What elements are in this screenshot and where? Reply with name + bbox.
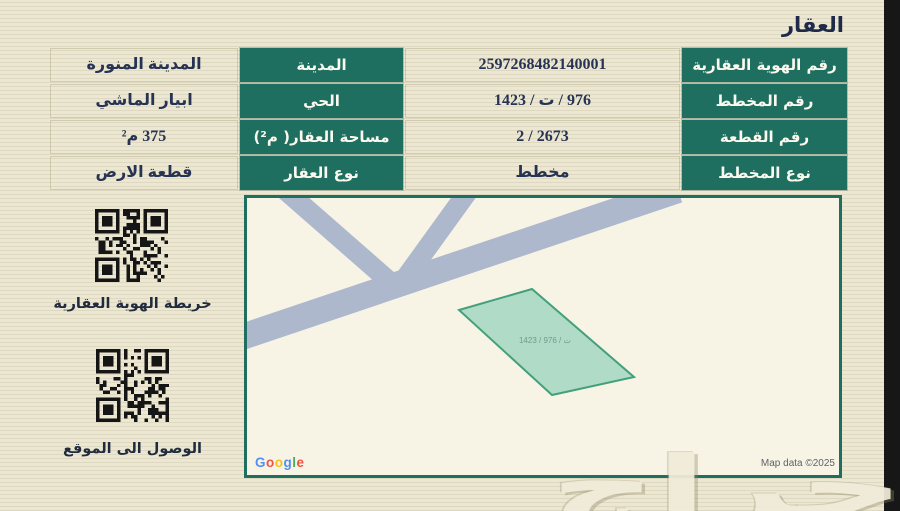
qr-label-location: الوصول الى الموقع: [40, 441, 225, 457]
qr-code-location: [96, 349, 169, 422]
page-title: العقار: [782, 13, 844, 37]
qr-code-identity-map: [95, 209, 168, 282]
value-district: ابيار الماشي: [50, 84, 238, 118]
parcel-label: 1423 / ت / 976: [480, 336, 610, 345]
value-property-type: قطعة الارض: [50, 156, 238, 190]
property-info-table: رقم الهوية العقارية 2597268482140001 الم…: [50, 48, 847, 192]
header-plan-type: نوع المخطط: [682, 156, 847, 190]
header-city: المدينة: [240, 48, 403, 82]
google-logo[interactable]: Google: [255, 455, 305, 470]
value-area: 375 م²: [50, 120, 238, 154]
header-plan-number: رقم المخطط: [682, 84, 847, 118]
header-property-id: رقم الهوية العقارية: [682, 48, 847, 82]
map-attribution: Map data ©2025: [761, 458, 835, 469]
value-plan-number: 976 / ت / 1423: [405, 84, 680, 118]
qr-label-identity-map: خريطة الهوية العقارية: [40, 296, 225, 312]
header-plot-number: رقم القطعة: [682, 120, 847, 154]
header-property-type: نوع العقار: [240, 156, 403, 190]
value-city: المدينة المنورة: [50, 48, 238, 82]
right-edge-strip: [884, 0, 900, 511]
value-property-id: 2597268482140001: [405, 48, 680, 82]
property-sheet: العقار رقم الهوية العقارية 2597268482140…: [0, 0, 900, 511]
map-embed[interactable]: 1423 / ت / 976 Google Map data ©2025: [244, 195, 842, 478]
header-district: الحي: [240, 84, 403, 118]
value-plot-number: 2673 / 2: [405, 120, 680, 154]
header-area: مساحة العقار( م²): [240, 120, 403, 154]
value-plan-type: مخطط: [405, 156, 680, 190]
